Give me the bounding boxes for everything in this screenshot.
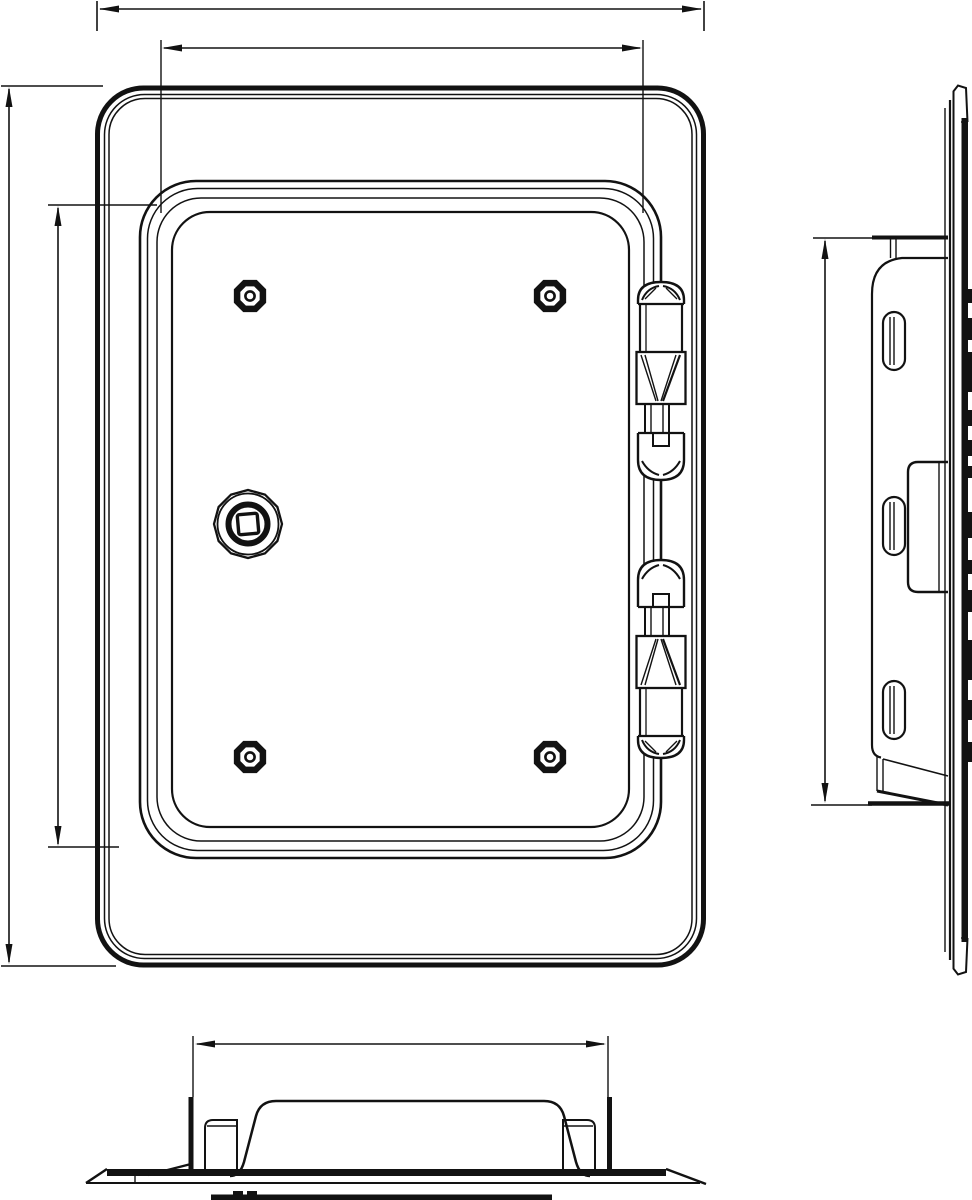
screw-bottom-right (537, 744, 563, 770)
side-lock-housing (908, 462, 948, 592)
side-slot-top (883, 312, 905, 370)
screw-top-left (237, 283, 263, 309)
hinge-bottom (637, 559, 686, 759)
screw-top-right (537, 283, 563, 309)
bottom-flange-plate (86, 1169, 706, 1200)
lock (214, 490, 282, 558)
dimension-front-overall-width (97, 1, 704, 31)
technical-drawing (0, 0, 972, 1200)
dimension-front-door-width (161, 40, 643, 213)
dimension-bottom-opening-width (193, 1036, 608, 1097)
bottom-view (86, 1097, 706, 1200)
front-view (98, 88, 704, 965)
side-rear-plate (945, 100, 950, 960)
side-slot-bottom (883, 681, 905, 739)
drawing-sheet (0, 0, 972, 1200)
bottom-door-dome (230, 1101, 590, 1176)
side-view (868, 86, 972, 975)
side-hardware-bumps (968, 289, 972, 762)
dimension-side-bracket-height (811, 238, 872, 805)
side-slot-middle (883, 497, 905, 555)
screw-bottom-left (237, 744, 263, 770)
bottom-clip-left (205, 1120, 237, 1176)
hinge-top (637, 281, 686, 481)
side-flange (953, 86, 972, 975)
